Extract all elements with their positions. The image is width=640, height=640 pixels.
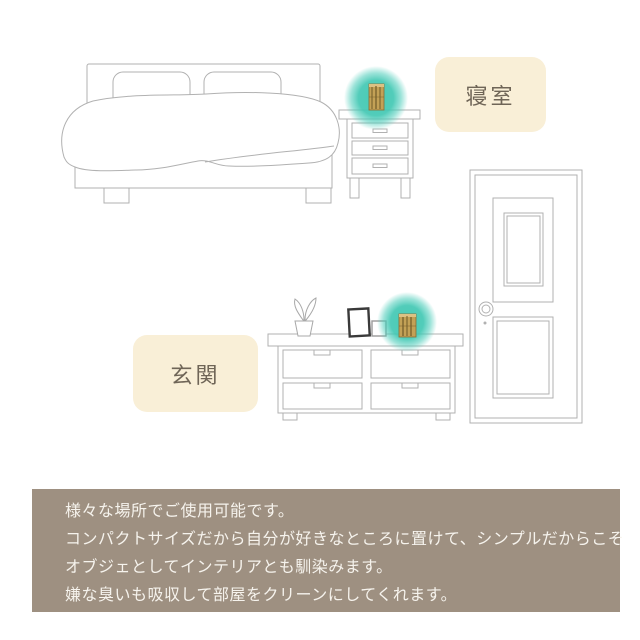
nightstand-leg-left [350,178,359,198]
nightstand-leg-right [401,178,410,198]
bedroom-label-text: 寝室 [465,79,515,111]
cabinet-handle-bottom-right [402,383,418,388]
product-usage-diagram: 寝室 玄関 様々な場所でご使用可能です。 コンパクトサイズだから自分が好きなとこ… [0,0,640,640]
door-keyhole [484,322,487,325]
potted-plant-icon [295,298,316,336]
door-icon [470,170,582,423]
bed-foot-left [104,188,129,203]
bedroom-label: 寝室 [435,57,546,132]
bamboo-charcoal-deodorizer-icon-bedroom [369,84,384,110]
entrance-label: 玄関 [133,335,258,412]
description-banner: 様々な場所でご使用可能です。 コンパクトサイズだから自分が好きなところに置けて、… [32,489,620,612]
cabinet-handle-bottom-left [314,383,330,388]
description-line-1: 様々な場所でご使用可能です。 [65,497,620,525]
description-line-4: 嫌な臭いも吸収して部屋をクリーンにしてくれます。 [65,581,620,609]
cabinet-icon [268,334,463,420]
bed-icon [62,64,340,203]
cabinet-handle-top-left [314,350,330,355]
picture-frame-icon [348,308,369,336]
nightstand-handle-2 [373,146,387,150]
bed-foot-right [306,188,331,203]
cabinet-foot-left [283,413,297,420]
description-line-2: コンパクトサイズだから自分が好きなところに置けて、シンプルだからこそ [65,525,620,553]
plant-leaf-right [305,298,316,320]
bamboo-charcoal-deodorizer-icon-entrance [399,314,416,337]
plant-leaf-left [295,299,304,320]
door-outer [470,170,582,423]
nightstand-handle-3 [373,164,387,168]
entrance-label-text: 玄関 [170,358,220,390]
bed-duvet [62,93,340,171]
cabinet-foot-right [436,413,450,420]
description-line-3: オブジェとしてインテリアとも馴染みます。 [65,553,620,581]
plant-pot [295,321,313,336]
